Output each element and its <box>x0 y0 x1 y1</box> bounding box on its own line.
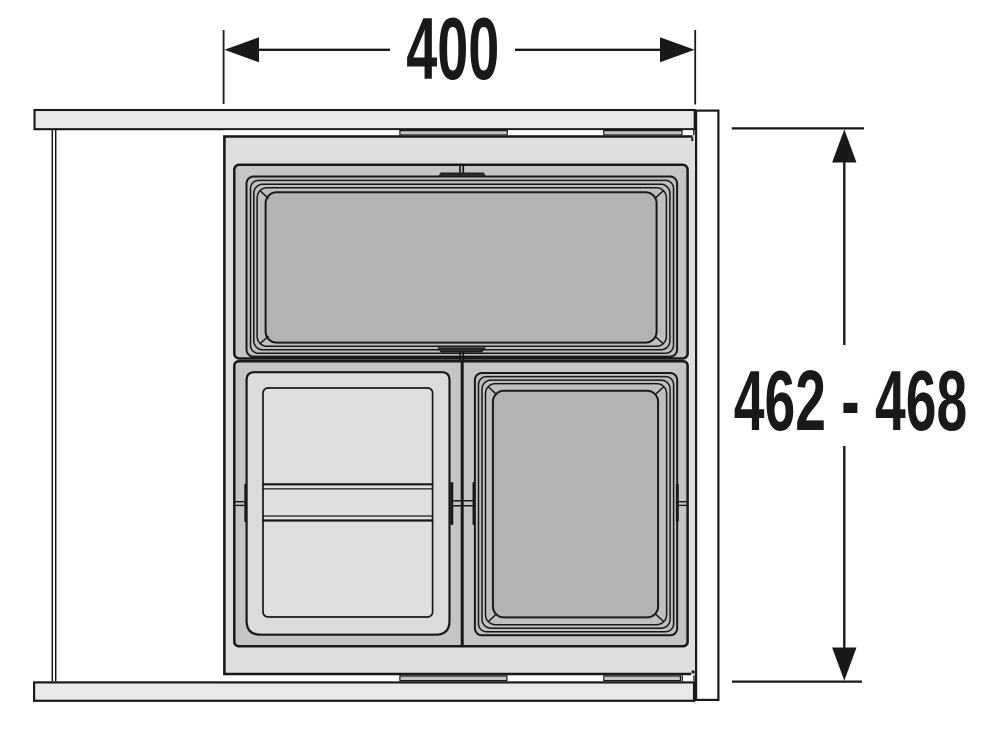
svg-text:400: 400 <box>406 0 499 98</box>
svg-text:462 - 468: 462 - 468 <box>734 354 967 449</box>
